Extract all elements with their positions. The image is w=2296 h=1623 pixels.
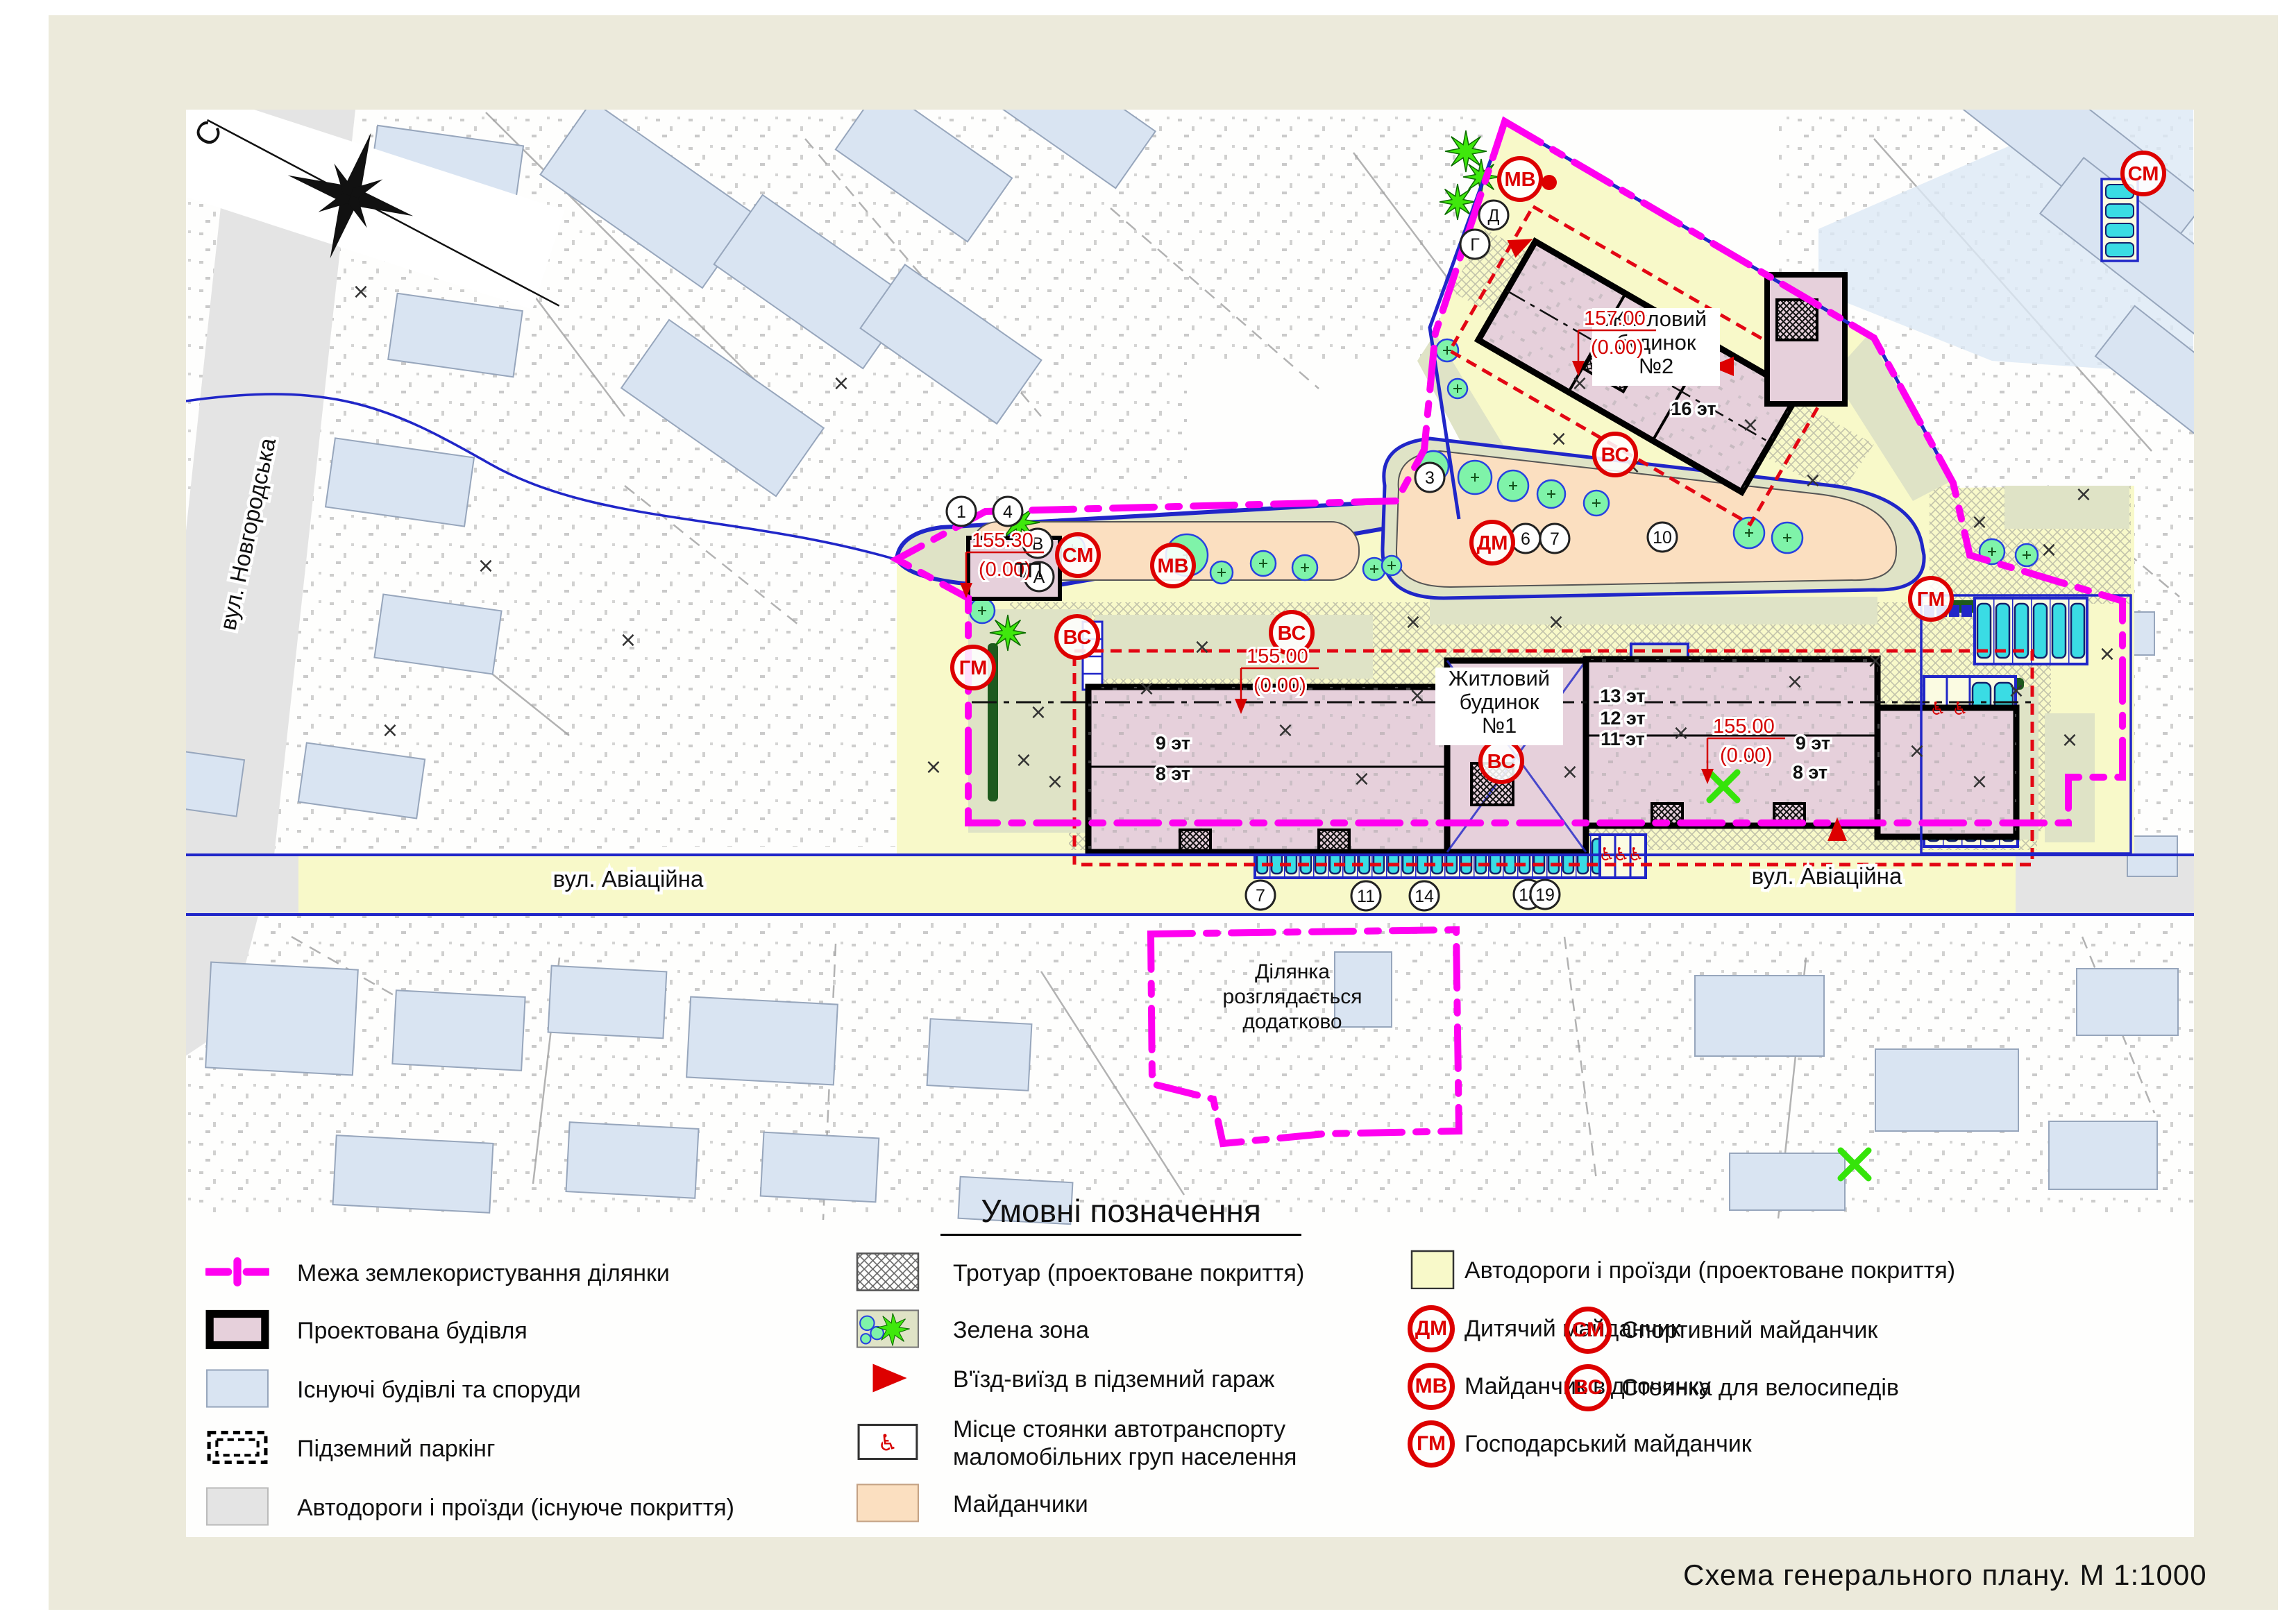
wheelchair-icon: ♿ — [1613, 844, 1629, 865]
badge-code: ГМ — [959, 657, 988, 679]
badge-code: ВС — [1601, 444, 1630, 466]
svg-text:157.00: 157.00 — [1584, 307, 1646, 330]
badge-ВС: ВС — [1056, 616, 1098, 658]
tree-icon — [1584, 491, 1609, 516]
boundary-swatch — [205, 1252, 269, 1295]
existing-building — [62, 135, 174, 213]
circle-mark: 4 — [993, 497, 1022, 526]
badge-code: ГМ — [1917, 588, 1945, 611]
tp-label: ТП — [1015, 559, 1043, 582]
legend-item-proposed: Проектована будівля — [205, 1309, 527, 1353]
existing-building — [51, 287, 172, 368]
svg-text:(0.00): (0.00) — [1591, 337, 1644, 359]
badge-ГМ-icon: ГМ — [1408, 1420, 1455, 1468]
tree-icon — [1458, 461, 1492, 494]
floor-count-label: 9 эт — [1156, 733, 1190, 754]
tree-icon — [1210, 561, 1233, 584]
survey-cross: × — [1015, 748, 1032, 772]
circle-mark: 11 — [1351, 881, 1381, 910]
floor-count-label: 16 эт — [1671, 398, 1716, 419]
survey-cross: × — [477, 554, 494, 578]
badge-ВС-icon: ВС — [1564, 1364, 1612, 1411]
survey-cross: × — [925, 755, 942, 779]
roads_existing-swatch — [205, 1486, 269, 1530]
existing-building — [1730, 1153, 1845, 1210]
existing-building — [2077, 969, 2178, 1035]
badge-code: ВС — [1278, 622, 1306, 645]
svg-text:Г: Г — [1470, 235, 1480, 255]
svg-text:155.30: 155.30 — [972, 529, 1033, 552]
circle-mark: 6 — [1511, 524, 1540, 553]
survey-cross: × — [1353, 767, 1370, 791]
survey-cross: × — [2040, 538, 2057, 562]
tree-icon — [1537, 480, 1565, 508]
legend-item-disabled: ♿Місце стоянки автотранспорту маломобіль… — [856, 1416, 1297, 1471]
survey-cross: × — [832, 371, 850, 396]
svg-text:№2: №2 — [1639, 354, 1674, 378]
legend-item-sidewalk-label: Тротуар (проектоване покриття) — [953, 1259, 1304, 1287]
svg-text:14: 14 — [1415, 887, 1434, 906]
existing-building — [333, 1135, 493, 1213]
svg-text:будинок: будинок — [1460, 690, 1539, 714]
street-label: вул. Авіаційна — [553, 866, 704, 892]
badge-code: ДМ — [1477, 532, 1508, 554]
legend-item-proposed-label: Проектована будівля — [297, 1317, 527, 1345]
survey-cross: × — [2061, 728, 2078, 752]
svg-text:3: 3 — [1425, 468, 1435, 488]
floor-count-label: 12 эт — [1600, 708, 1645, 729]
badge-ДМ-icon: ДМ — [1408, 1305, 1455, 1352]
svg-text:19: 19 — [1535, 885, 1555, 905]
badge-ГМ: ГМ — [1910, 578, 1952, 620]
shrub-star-icon — [990, 615, 1026, 651]
existing-building — [392, 990, 525, 1071]
circle-mark: 10 — [1648, 522, 1677, 552]
badge-code: СМ — [1063, 545, 1094, 567]
legend-item-boundary: Межа землекористування ділянки — [205, 1252, 670, 1295]
badge-СМ: СМ — [2122, 153, 2164, 194]
legend-badge-ВС-label: Стоянка для велосипедів — [1621, 1374, 1899, 1402]
survey-cross: × — [1138, 677, 1155, 701]
survey-cross: × — [2075, 482, 2092, 507]
wheelchair-icon: ♿ — [1952, 699, 1968, 720]
badge-ВС: ВС — [1480, 740, 1522, 782]
survey-cross: × — [1908, 739, 1925, 763]
svg-text:Житловий: Житловий — [1449, 666, 1550, 690]
survey-cross: × — [1741, 413, 1759, 437]
legend-item-existing-label: Існуючі будівлі та споруди — [297, 1376, 581, 1404]
parking-swatch — [205, 1427, 269, 1471]
svg-text:В: В — [1032, 534, 1044, 554]
badge-code: МВ — [1157, 555, 1188, 577]
badge-ВС: ВС — [1594, 434, 1636, 475]
legend-item-playgrounds: Майданчики — [856, 1483, 1088, 1527]
circle-mark: Г — [1460, 230, 1489, 259]
survey-cross: × — [1408, 683, 1426, 708]
existing-building — [2049, 1121, 2157, 1189]
existing-building — [927, 1019, 1032, 1091]
drawing-page: ×××××××××××××××××××××××××××××××××××× 143… — [0, 0, 2296, 1623]
circle-mark: Д — [1479, 201, 1508, 230]
legend-item-boundary-label: Межа землекористування ділянки — [297, 1259, 670, 1287]
legend-item-sidewalk: Тротуар (проектоване покриття) — [856, 1252, 1304, 1295]
survey-cross: × — [352, 280, 369, 304]
legend-item-roads_existing-label: Автодороги і проїзди (існуюче покриття) — [297, 1494, 734, 1522]
svg-text:155.00: 155.00 — [1247, 645, 1308, 668]
badge-МВ-icon: МВ — [1408, 1363, 1455, 1410]
existing-building — [548, 966, 667, 1039]
legend-badge-ВС: ВССтоянка для велосипедів — [1564, 1364, 1899, 1411]
legend-item-entry: В'їзд-виїзд в підземний гараж — [856, 1358, 1274, 1402]
tree-icon — [1772, 522, 1803, 553]
badge-ДМ: ДМ — [1471, 522, 1513, 563]
existing-building — [1875, 1049, 2018, 1131]
legend-item-entry-label: В'їзд-виїзд в підземний гараж — [953, 1366, 1274, 1393]
legend-item-parking: Підземний паркінг — [205, 1427, 495, 1471]
existing-building — [205, 962, 358, 1076]
svg-text:Ділянка: Ділянка — [1255, 960, 1330, 983]
survey-cross: × — [1550, 427, 1567, 451]
svg-text:4: 4 — [1003, 502, 1013, 522]
wheelchair-icon: ♿ — [1628, 844, 1644, 865]
survey-cross: × — [2098, 642, 2116, 666]
tree-icon — [1448, 379, 1467, 398]
red-dot-mark — [1542, 175, 1557, 190]
survey-cross: × — [1046, 770, 1063, 794]
floor-count-label: 13 эт — [1600, 686, 1645, 706]
svg-text:розглядається: розглядається — [1223, 985, 1362, 1008]
legend-item-existing: Існуючі будівлі та споруди — [205, 1368, 581, 1412]
svg-text:(0.00): (0.00) — [1720, 745, 1773, 767]
disabled-swatch: ♿ — [856, 1422, 920, 1465]
badge-МВ: МВ — [1152, 545, 1194, 586]
legend-badge-СМ: СМСпортивний майданчик — [1564, 1307, 1877, 1354]
entry-swatch — [856, 1358, 920, 1402]
tree-icon — [1498, 470, 1528, 501]
floor-count-label: 8 эт — [1793, 762, 1827, 783]
green-swatch — [856, 1309, 920, 1352]
tree-icon — [1251, 551, 1276, 576]
circle-mark: 3 — [1415, 463, 1444, 492]
floor-count-label: 9 эт — [1796, 733, 1830, 754]
survey-cross: × — [1804, 468, 1821, 493]
existing-building — [39, 454, 165, 536]
survey-cross: × — [381, 718, 398, 742]
svg-text:11: 11 — [1357, 887, 1375, 906]
floor-count-label: 11 эт — [1601, 729, 1645, 749]
survey-cross: × — [1866, 649, 1884, 673]
badge-СМ-icon: СМ — [1564, 1307, 1612, 1354]
legend-title: Умовні позначення — [940, 1192, 1301, 1236]
badge-code: МВ — [1504, 169, 1535, 191]
legend-item-disabled-label: Місце стоянки автотранспорту маломобільн… — [953, 1416, 1297, 1471]
survey-cross: × — [1404, 610, 1421, 634]
sheet-title: Схема генерального плану. М 1:1000 — [1683, 1558, 2207, 1592]
tree-icon — [2016, 544, 2038, 566]
svg-text:(0.00): (0.00) — [1253, 674, 1306, 697]
existing-building — [761, 1132, 879, 1203]
survey-cross: × — [1276, 718, 1294, 742]
svg-text:7: 7 — [1550, 529, 1560, 549]
svg-text:♿: ♿ — [877, 1429, 897, 1456]
svg-text:7: 7 — [1256, 886, 1265, 906]
svg-text:додатково: додатково — [1242, 1010, 1342, 1033]
svg-text:1: 1 — [956, 502, 966, 522]
survey-cross: × — [2007, 679, 2025, 703]
tree-icon — [1382, 556, 1401, 575]
legend-item-roads_proposed-label: Автодороги і проїзди (проектоване покрит… — [1464, 1257, 1955, 1284]
survey-cross: × — [1561, 760, 1578, 784]
tree-icon — [1292, 555, 1317, 580]
badge-code: ВС — [1487, 751, 1516, 773]
legend-item-parking-label: Підземний паркінг — [297, 1435, 495, 1463]
roads_proposed-swatch — [1410, 1249, 1456, 1293]
existing-building — [686, 997, 838, 1085]
building-label: Житловийбудинок№1 — [1435, 666, 1563, 745]
circle-mark: 7 — [1246, 881, 1275, 910]
badge-ГМ: ГМ — [952, 647, 994, 688]
survey-cross: × — [1970, 510, 1988, 534]
existing-building — [34, 634, 162, 720]
survey-cross: × — [1547, 610, 1564, 634]
survey-cross: × — [1571, 371, 1588, 396]
proposed-swatch — [205, 1309, 269, 1353]
legend-item-roads_proposed: Автодороги і проїзди (проектоване покрит… — [1410, 1249, 1955, 1293]
legend-badge-ГМ-label: Господарський майданчик — [1464, 1430, 1752, 1458]
badge-МВ: МВ — [1499, 158, 1541, 200]
survey-cross: × — [1029, 700, 1047, 724]
street-label: вул. Авіаційна — [1752, 863, 1902, 889]
legend-item-playgrounds-label: Майданчики — [953, 1490, 1088, 1518]
badge-code: СМ — [2128, 163, 2159, 185]
playgrounds-swatch — [856, 1483, 920, 1527]
legend-badge-СМ-label: Спортивний майданчик — [1621, 1316, 1877, 1344]
legend-item-green-label: Зелена зона — [953, 1316, 1089, 1344]
existing-swatch — [205, 1368, 269, 1412]
wheelchair-icon: ♿ — [1930, 699, 1945, 720]
legend-item-green: Зелена зона — [856, 1309, 1089, 1352]
svg-text:6: 6 — [1521, 529, 1530, 549]
badge-code: ВС — [1063, 627, 1092, 649]
svg-text:№1: №1 — [1482, 713, 1517, 738]
legend-badge-ГМ: ГМГосподарський майданчик — [1408, 1420, 1752, 1468]
circle-mark: 1 — [947, 497, 976, 526]
survey-cross: × — [1786, 670, 1803, 694]
existing-building — [566, 1122, 699, 1198]
wheelchair-icon: ♿ — [1598, 844, 1614, 865]
svg-text:155.00: 155.00 — [1713, 715, 1775, 738]
circle-mark: 14 — [1410, 881, 1439, 910]
svg-text:10: 10 — [1653, 528, 1672, 547]
circle-mark: 7 — [1540, 524, 1569, 553]
floor-count-label: 8 эт — [1156, 763, 1190, 784]
tree-icon — [970, 598, 995, 623]
survey-cross: × — [1193, 635, 1210, 659]
sidewalk-swatch — [856, 1252, 920, 1295]
circle-mark: 19 — [1530, 880, 1560, 909]
svg-text:Д: Д — [1488, 206, 1500, 226]
survey-cross: × — [619, 628, 636, 652]
existing-building — [1695, 976, 1824, 1056]
badge-СМ: СМ — [1057, 534, 1099, 576]
legend-item-roads_existing: Автодороги і проїзди (існуюче покриття) — [205, 1486, 734, 1530]
survey-cross: × — [1970, 770, 1988, 794]
survey-cross: × — [1672, 721, 1689, 745]
